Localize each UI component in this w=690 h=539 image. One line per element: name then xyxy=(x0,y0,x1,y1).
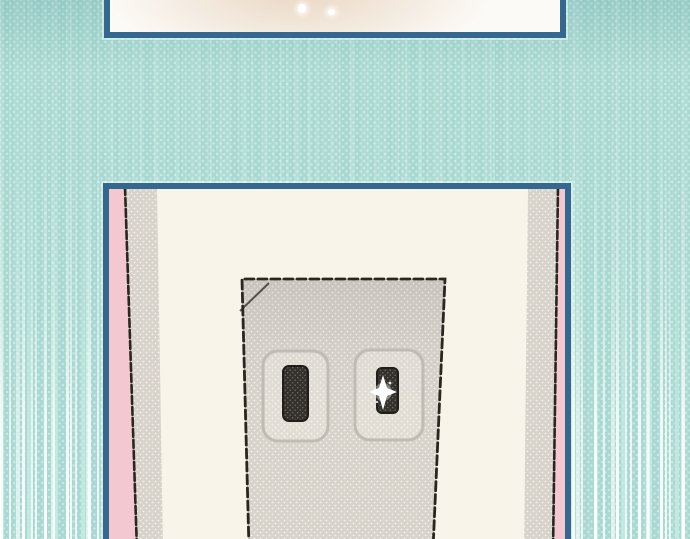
panel-top xyxy=(104,0,566,38)
comic-page xyxy=(0,0,690,539)
outlet-scene xyxy=(109,189,565,539)
sparkle-icon xyxy=(328,9,335,15)
panel-bottom xyxy=(103,183,571,539)
sparkle-icon xyxy=(298,4,306,13)
soft-glow xyxy=(110,0,560,32)
outlet-slot-left xyxy=(283,366,308,421)
